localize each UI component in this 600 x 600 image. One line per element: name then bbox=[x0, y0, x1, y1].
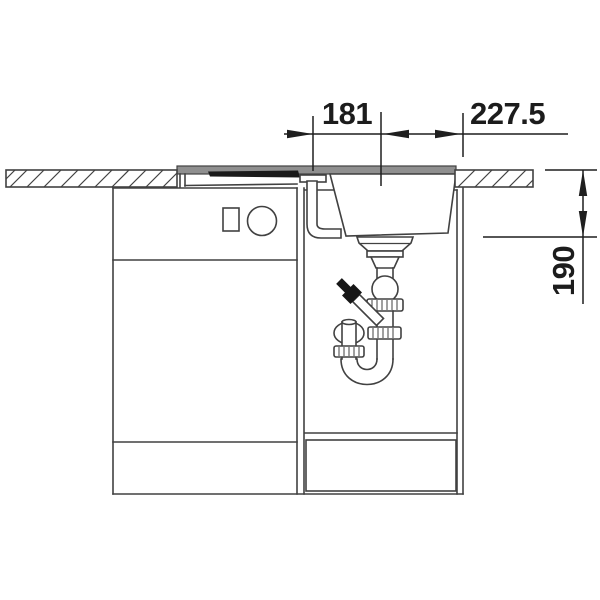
siphon-trap bbox=[334, 237, 413, 385]
ball-joint bbox=[372, 276, 398, 302]
countertop-right bbox=[455, 170, 533, 187]
dimension-label-depth: 190 bbox=[546, 246, 581, 296]
countertop-left bbox=[6, 170, 177, 187]
dimension-label-offset: 181 bbox=[322, 96, 372, 131]
dimension-vertical: 190 bbox=[483, 170, 597, 304]
arrowhead-up-icon bbox=[579, 170, 587, 196]
u-bend-inner bbox=[357, 359, 377, 370]
arrowhead-down-icon bbox=[579, 211, 587, 237]
sink-underside bbox=[185, 184, 297, 186]
outlet-cap bbox=[342, 320, 356, 325]
sink-unit bbox=[177, 166, 456, 238]
dishwasher-inlet-stub bbox=[339, 281, 348, 290]
door-symbol-circle bbox=[248, 207, 277, 236]
drain-collar bbox=[367, 251, 403, 257]
door-symbol-square bbox=[223, 208, 239, 231]
arrowhead-right-icon bbox=[435, 130, 461, 138]
dimension-label-cutout: 227.5 bbox=[470, 96, 545, 131]
drawing-canvas: 181 227.5 190 bbox=[0, 0, 600, 600]
sink-installation-diagram: 181 227.5 190 bbox=[0, 0, 600, 600]
sink-bowl bbox=[330, 174, 456, 236]
drain-neck bbox=[371, 257, 399, 268]
drainer-groove bbox=[208, 171, 300, 178]
arrowhead-left-icon bbox=[383, 130, 409, 138]
sink-cabinet-drawer-front bbox=[306, 440, 456, 491]
arrowhead-right-icon bbox=[287, 130, 313, 138]
u-bend-outer bbox=[341, 359, 393, 385]
countertop-left-slab bbox=[6, 170, 177, 187]
